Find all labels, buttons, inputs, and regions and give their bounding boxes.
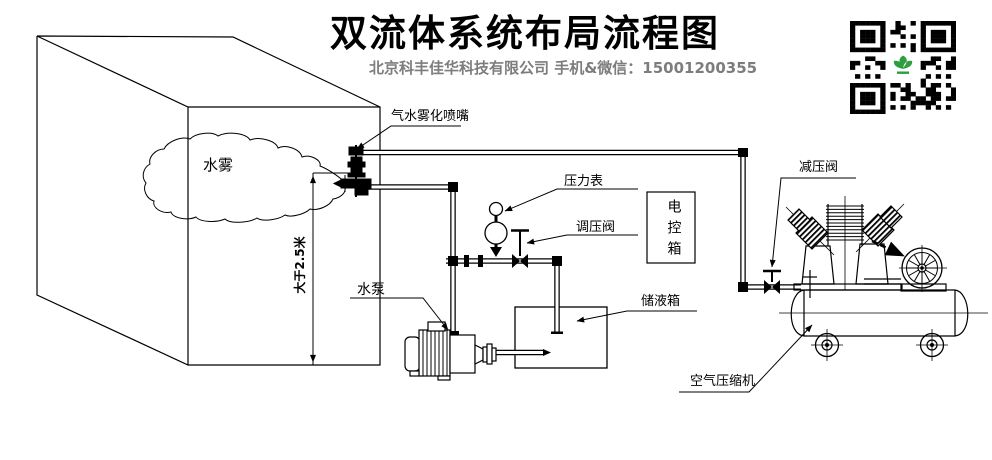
label-water-pump: 水泵 xyxy=(357,282,385,300)
label-reducing-valve: 减压阀 xyxy=(799,160,838,176)
label-pressure-gauge: 压力表 xyxy=(564,174,603,190)
water-pump-drawing xyxy=(405,322,496,380)
label-nozzle: 气水雾化喷嘴 xyxy=(391,109,469,125)
compressor-wheel-left xyxy=(811,329,843,361)
label-air-compressor: 空气压缩机 xyxy=(690,374,755,390)
label-min-height-dimension: 大于2.5米 xyxy=(293,220,309,310)
leader-liquid-tank xyxy=(577,311,697,321)
air-compressor-drawing xyxy=(779,196,988,361)
qr-leaf-logo xyxy=(894,56,912,74)
label-control-box: 电控箱 xyxy=(664,199,682,262)
room-box-outline xyxy=(37,36,380,365)
page-title: 双流体系统布局流程图 xyxy=(330,11,720,57)
label-mist: 水雾 xyxy=(203,156,233,175)
leader-pressure-gauge xyxy=(505,189,638,211)
compressor-wheel-right xyxy=(916,329,948,361)
wechat-qr-code xyxy=(850,21,956,114)
mist-cloud xyxy=(143,133,346,222)
label-liquid-tank: 储液箱 xyxy=(641,294,680,310)
reducing-valve-symbol xyxy=(763,271,781,294)
label-regulating-valve: 调压阀 xyxy=(576,220,615,236)
liquid-tank-outline xyxy=(515,307,607,368)
page-subtitle: 北京科丰佳华科技有限公司 手机&微信：15001200355 xyxy=(369,59,757,78)
pressure-gauge-symbol xyxy=(485,203,507,258)
leader-nozzle xyxy=(357,126,461,149)
page-root: 双流体系统布局流程图 北京科丰佳华科技有限公司 手机&微信：1500120035… xyxy=(0,0,992,460)
